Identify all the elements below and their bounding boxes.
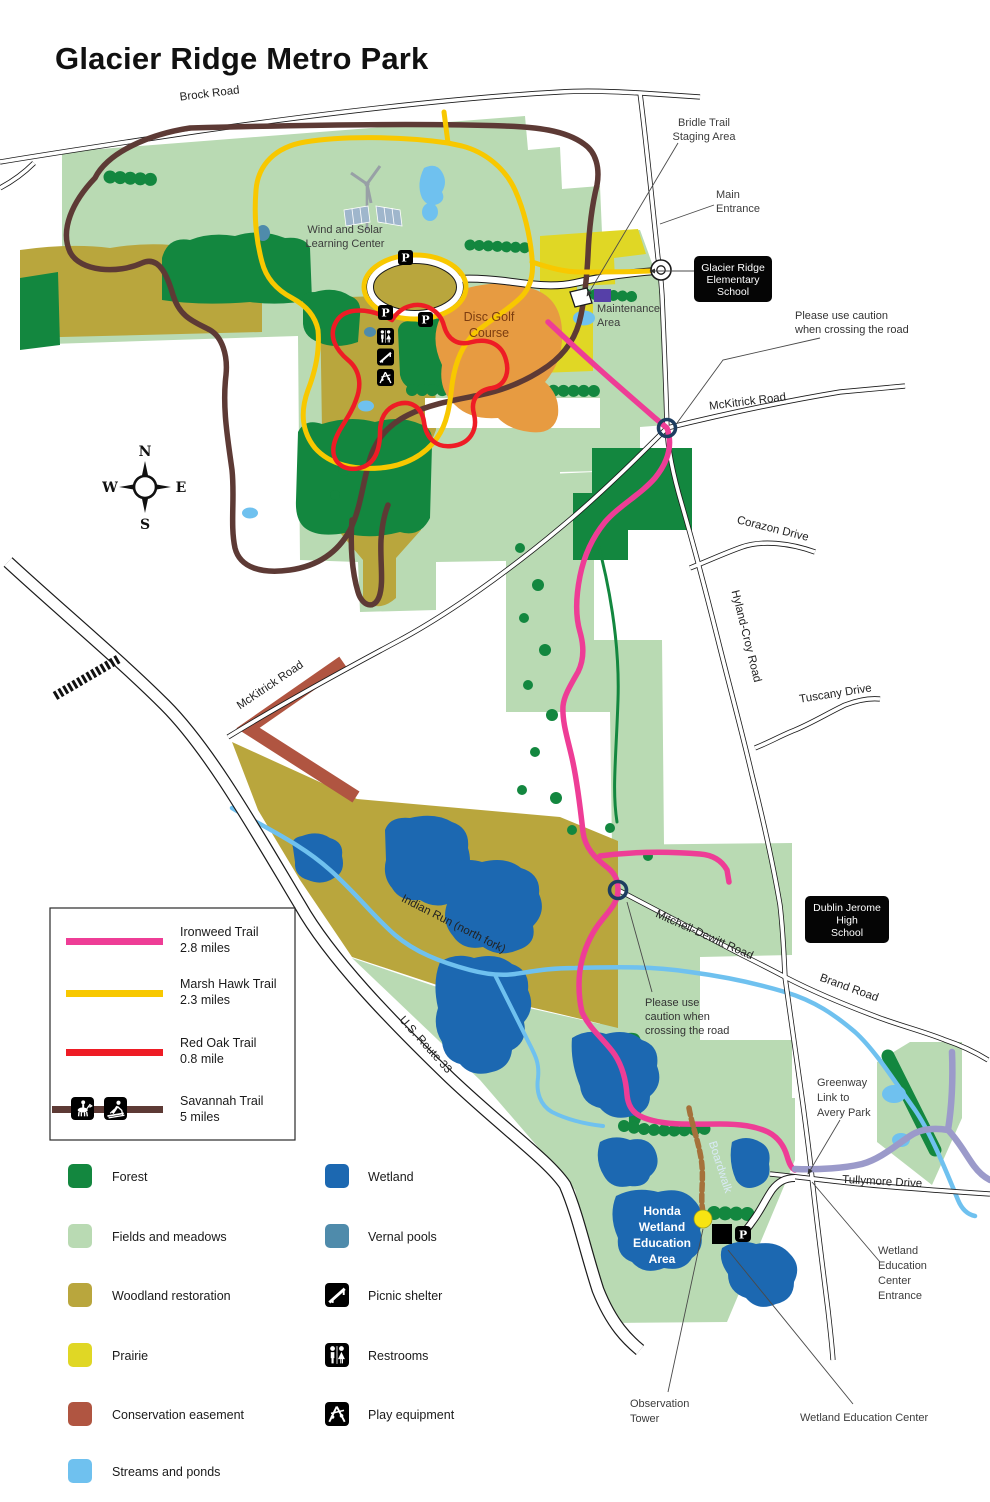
svg-text:P: P — [381, 307, 389, 320]
svg-text:caution when: caution when — [645, 1011, 710, 1023]
svg-text:Please use: Please use — [645, 997, 699, 1009]
svg-text:Link to: Link to — [817, 1092, 849, 1104]
savannah-name: Savannah Trail — [180, 1094, 263, 1108]
svg-text:Main: Main — [716, 189, 740, 201]
red-oak-length: 0.8 mile — [180, 1052, 224, 1066]
red-oak-name: Red Oak Trail — [180, 1036, 256, 1050]
park-map-page: Glacier Ridge Metro Park — [0, 0, 990, 1502]
svg-text:P: P — [421, 314, 429, 327]
parking-icon: P — [418, 312, 433, 327]
svg-text:Center: Center — [878, 1275, 911, 1287]
svg-text:Tower: Tower — [630, 1413, 660, 1425]
svg-text:Elementary: Elementary — [706, 274, 760, 286]
svg-text:P: P — [739, 1229, 747, 1242]
svg-text:Dublin Jerome: Dublin Jerome — [813, 902, 881, 914]
svg-text:Conservation easement: Conservation easement — [112, 1408, 245, 1422]
area-legend: Forest Fields and meadows Woodland resto… — [68, 1164, 455, 1483]
wec-entrance-label: Wetland Education Center Entrance — [878, 1245, 927, 1302]
parking-icon: P — [398, 250, 413, 265]
svg-text:Prairie: Prairie — [112, 1349, 148, 1363]
play-equipment-icon — [325, 1402, 349, 1426]
marsh-hawk-length: 2.3 miles — [180, 993, 230, 1007]
bridle-staging-label: Bridle Trail Staging Area — [673, 117, 737, 143]
marsh-hawk-name: Marsh Hawk Trail — [180, 977, 277, 991]
svg-text:Disc Golf: Disc Golf — [464, 310, 515, 324]
woodland-swatch — [68, 1283, 92, 1307]
parking-icon: P — [378, 305, 393, 320]
observation-tower-marker — [694, 1210, 712, 1228]
svg-text:Education: Education — [633, 1236, 691, 1250]
wetland-education-center-building — [712, 1224, 732, 1244]
svg-text:Vernal pools: Vernal pools — [368, 1230, 437, 1244]
svg-text:Woodland restoration: Woodland restoration — [112, 1289, 231, 1303]
svg-text:Honda: Honda — [643, 1204, 681, 1218]
play-equipment-icon — [377, 369, 394, 386]
picnic-shelter-icon — [325, 1283, 349, 1307]
svg-text:Fields and meadows: Fields and meadows — [112, 1230, 227, 1244]
svg-text:Area: Area — [597, 317, 621, 329]
trail-legend: Ironweed Trail 2.8 miles Marsh Hawk Trai… — [50, 908, 295, 1140]
compass-s: S — [140, 517, 150, 533]
restrooms-icon — [377, 328, 394, 345]
svg-text:P: P — [401, 252, 409, 265]
svg-text:Greenway: Greenway — [817, 1077, 868, 1089]
svg-text:Wetland: Wetland — [368, 1170, 414, 1184]
fields-swatch — [68, 1224, 92, 1248]
wec-label: Wetland Education Center — [800, 1412, 929, 1424]
wetland-swatch — [325, 1164, 349, 1188]
prairie-swatch — [68, 1343, 92, 1367]
observation-tower-label: Observation Tower — [630, 1398, 689, 1425]
main-entrance-label: Main Entrance — [716, 189, 760, 215]
svg-text:Staging Area: Staging Area — [673, 131, 737, 143]
page-title: Glacier Ridge Metro Park — [55, 41, 429, 77]
svg-text:Learning Center: Learning Center — [306, 238, 385, 250]
svg-text:Entrance: Entrance — [878, 1290, 922, 1302]
svg-text:Restrooms: Restrooms — [368, 1349, 428, 1363]
roundabout-island — [657, 266, 665, 274]
svg-text:Picnic shelter: Picnic shelter — [368, 1289, 442, 1303]
horseback-icon — [71, 1097, 94, 1120]
compass-n: N — [139, 444, 152, 460]
elementary-school-box: Glacier Ridge Elementary School — [694, 256, 772, 302]
compass-rose: N S W E — [101, 444, 186, 533]
caution-lower-label: Please use caution when crossing the roa… — [645, 997, 729, 1037]
ironweed-name: Ironweed Trail — [180, 925, 259, 939]
railroad-crossing — [55, 658, 120, 696]
mckitrick-road-east — [667, 386, 905, 428]
vernal-swatch — [325, 1224, 349, 1248]
ski-icon — [104, 1097, 127, 1120]
svg-text:when crossing the road: when crossing the road — [794, 324, 909, 336]
marsh-hawk-swatch — [66, 990, 163, 997]
savannah-length: 5 miles — [180, 1110, 220, 1124]
svg-text:Maintenance: Maintenance — [597, 303, 660, 315]
picnic-shelter-icon — [377, 349, 394, 366]
parking-icon: P — [735, 1226, 751, 1242]
svg-text:High: High — [836, 915, 858, 927]
corazon-drive-label: Corazon Drive — [736, 514, 810, 543]
greenway-link-label: Greenway Link to Avery Park — [817, 1077, 871, 1119]
forest-swatch — [68, 1164, 92, 1188]
brock-road-label: Brock Road — [179, 84, 240, 103]
svg-text:Course: Course — [469, 326, 509, 340]
svg-text:Forest: Forest — [112, 1170, 148, 1184]
svg-text:Glacier Ridge: Glacier Ridge — [701, 262, 765, 274]
svg-text:Play equipment: Play equipment — [368, 1408, 455, 1422]
tullymore-drive-label: Tullymore Drive — [842, 1174, 923, 1190]
svg-text:Observation: Observation — [630, 1398, 689, 1410]
svg-text:Streams and ponds: Streams and ponds — [112, 1465, 220, 1479]
svg-text:Area: Area — [649, 1252, 676, 1266]
caution-upper-label: Please use caution when crossing the roa… — [794, 310, 909, 336]
svg-text:Education: Education — [878, 1260, 927, 1272]
compass-w: W — [101, 480, 118, 496]
restrooms-icon — [325, 1343, 349, 1367]
park-map: P P P P — [0, 0, 990, 1502]
svg-text:crossing the road: crossing the road — [645, 1025, 729, 1037]
svg-text:Wetland: Wetland — [878, 1245, 918, 1257]
svg-text:Please use caution: Please use caution — [795, 310, 888, 322]
mckitrick-road-west-label: McKitrick Road — [235, 659, 306, 712]
svg-text:School: School — [717, 286, 749, 298]
svg-text:Wind and Solar: Wind and Solar — [307, 224, 383, 236]
svg-text:Entrance: Entrance — [716, 203, 760, 215]
conservation-swatch — [68, 1402, 92, 1426]
fields-south-strip2 — [700, 1040, 792, 1105]
svg-text:Wetland: Wetland — [639, 1220, 685, 1234]
hyland-croy-road-label: Hyland-Croy Road — [729, 589, 764, 684]
ironweed-length: 2.8 miles — [180, 941, 230, 955]
high-school-box: Dublin Jerome High School — [805, 896, 889, 943]
maintenance-building — [594, 289, 611, 302]
svg-text:Avery Park: Avery Park — [817, 1107, 871, 1119]
main-entrance-leader — [660, 205, 714, 224]
streams-swatch — [68, 1459, 92, 1483]
ironweed-swatch — [66, 938, 163, 945]
svg-text:Bridle Trail: Bridle Trail — [678, 117, 730, 129]
red-oak-swatch — [66, 1049, 163, 1056]
compass-e: E — [176, 480, 187, 496]
svg-text:School: School — [831, 927, 863, 939]
